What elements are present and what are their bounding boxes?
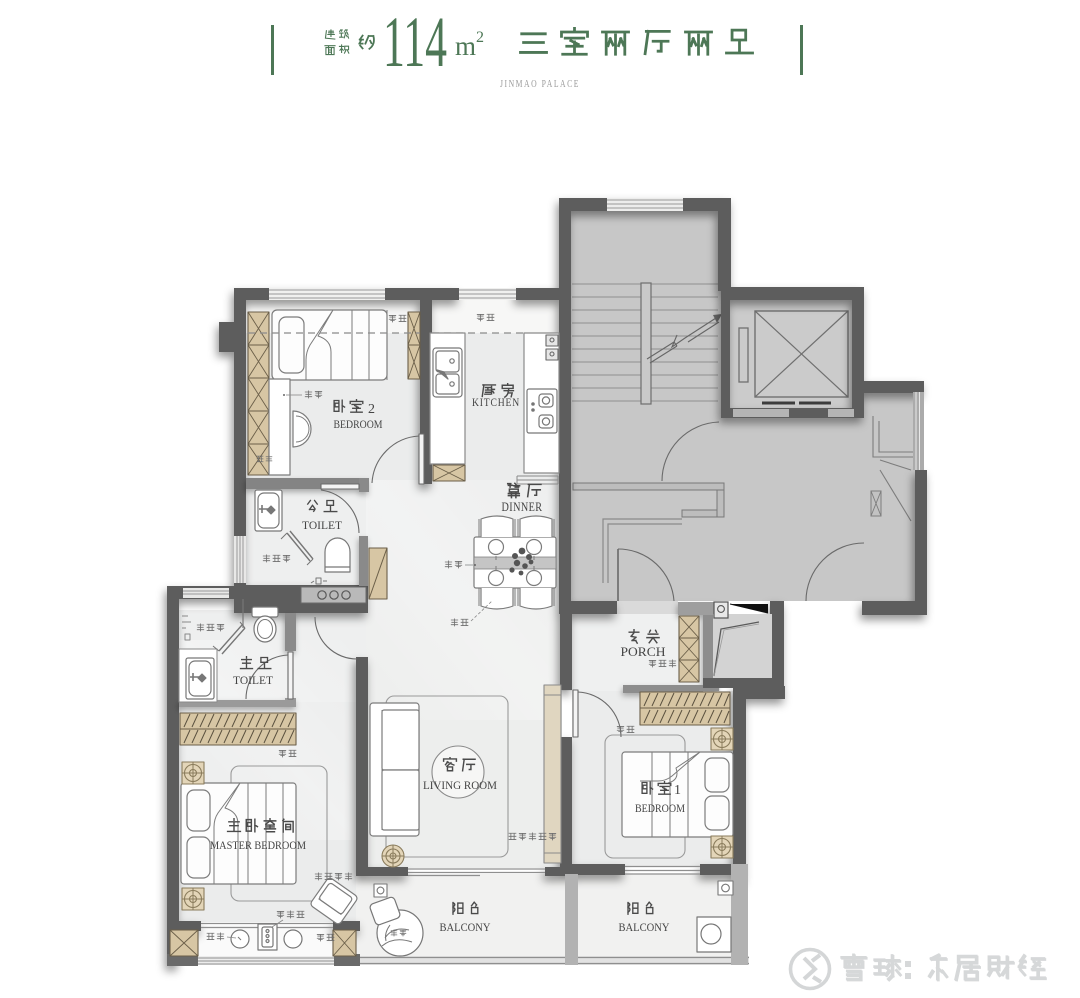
svg-text:TOILET: TOILET	[233, 673, 274, 687]
svg-text:1: 1	[674, 783, 681, 798]
svg-text:2: 2	[368, 402, 375, 417]
svg-text:LIVING ROOM: LIVING ROOM	[423, 778, 497, 792]
svg-text:BALCONY: BALCONY	[619, 920, 670, 934]
svg-text:JINMAO PALACE: JINMAO PALACE	[500, 79, 580, 90]
svg-text:PORCH: PORCH	[621, 644, 666, 659]
svg-text:2: 2	[476, 29, 484, 46]
svg-text:m: m	[455, 31, 476, 61]
svg-text:BEDROOM: BEDROOM	[334, 417, 383, 431]
svg-text:KITCHEN: KITCHEN	[472, 395, 520, 409]
svg-text:TOILET: TOILET	[302, 518, 343, 532]
svg-text:MASTER BEDROOM: MASTER BEDROOM	[210, 838, 306, 852]
svg-text:BALCONY: BALCONY	[440, 920, 491, 934]
svg-text:BEDROOM: BEDROOM	[635, 801, 685, 815]
svg-text:114: 114	[383, 2, 447, 82]
svg-text:DINNER: DINNER	[502, 500, 543, 514]
